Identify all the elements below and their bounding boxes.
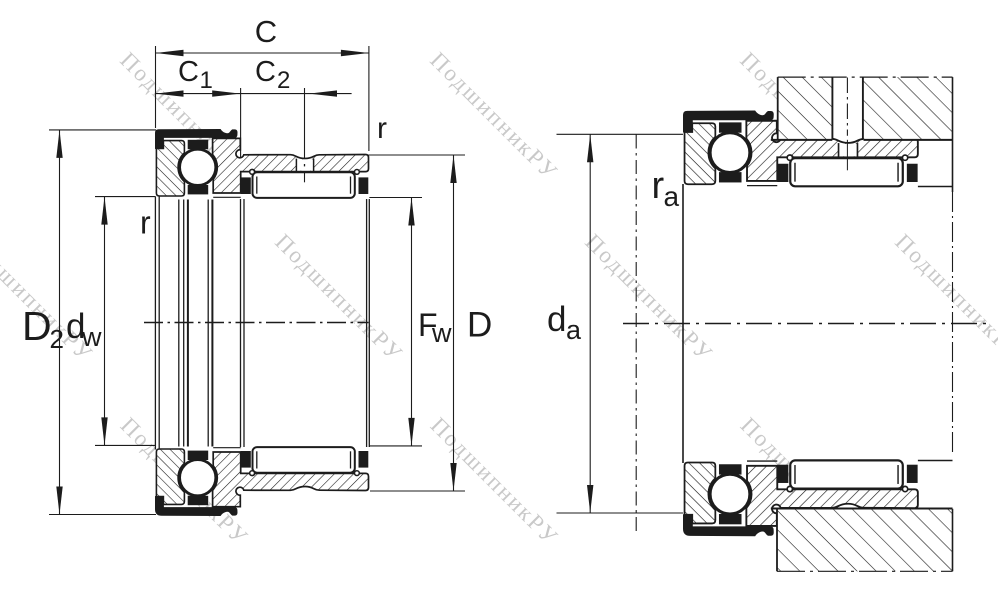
svg-text:a: a bbox=[664, 181, 680, 212]
svg-text:2: 2 bbox=[277, 67, 290, 94]
svg-text:C: C bbox=[255, 56, 276, 88]
svg-text:a: a bbox=[566, 315, 582, 345]
svg-text:w: w bbox=[81, 322, 102, 352]
svg-text:D: D bbox=[22, 303, 52, 349]
svg-text:1: 1 bbox=[200, 67, 213, 94]
svg-text:r: r bbox=[140, 205, 151, 241]
svg-text:d: d bbox=[547, 300, 566, 339]
svg-text:C: C bbox=[255, 14, 277, 49]
svg-text:w: w bbox=[431, 318, 452, 348]
svg-text:D: D bbox=[467, 306, 492, 345]
svg-text:C: C bbox=[178, 56, 199, 88]
svg-text:2: 2 bbox=[50, 324, 64, 354]
svg-text:r: r bbox=[377, 112, 387, 145]
